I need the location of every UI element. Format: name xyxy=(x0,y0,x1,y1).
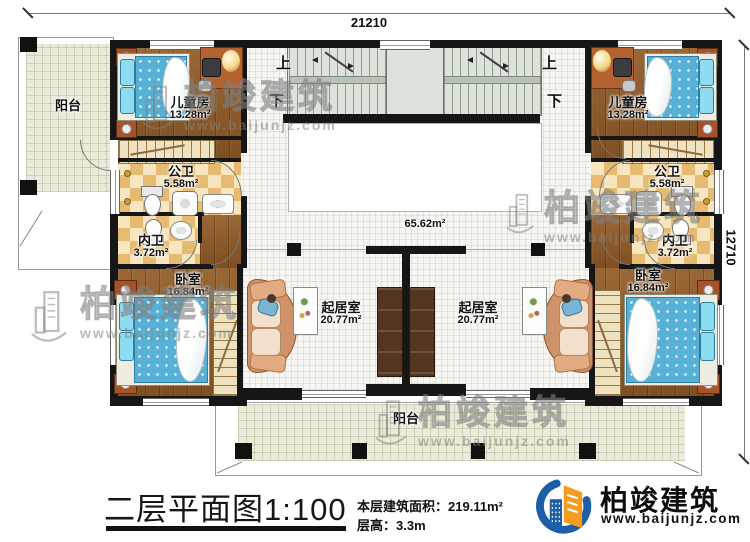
wall-bath-top-left xyxy=(117,158,241,162)
pillow xyxy=(700,332,715,361)
computer-monitor xyxy=(202,58,221,77)
wall-bedroom-living-left xyxy=(237,268,243,396)
wall-privbath-side-left xyxy=(198,215,202,243)
balcony-post-1 xyxy=(235,443,252,459)
computer-monitor xyxy=(613,58,632,77)
hall-area-label: 65.62m² xyxy=(392,219,458,231)
nightstand xyxy=(116,120,137,138)
floor-area-label: 本层建筑面积： xyxy=(357,499,448,514)
washing-machine xyxy=(172,191,198,216)
page-title: 二层平面图1:100 xyxy=(104,484,347,529)
balcony-left-post-top xyxy=(20,37,37,52)
pillow xyxy=(700,302,715,331)
wall-bottom-pier-left xyxy=(240,388,302,400)
balcony-left-door-gap xyxy=(110,140,118,170)
wall-bottom-pier-right xyxy=(530,388,592,400)
person-head xyxy=(267,294,276,303)
wall-privbath-side-right xyxy=(630,215,634,243)
pillow xyxy=(119,302,134,331)
dimension-line-right xyxy=(744,46,745,460)
washing-machine xyxy=(636,191,662,216)
balcony-post-3 xyxy=(471,443,485,459)
window-left-bath xyxy=(110,170,120,214)
dimension-width-value: 21210 xyxy=(338,15,400,30)
double-height-void xyxy=(288,123,542,212)
room-label-balcony-bottom: 阳台 xyxy=(374,412,438,426)
company-logo-url: www.baijunjz.com xyxy=(601,511,742,526)
balcony-left-post-bottom xyxy=(20,180,37,195)
tv-cabinet-right xyxy=(409,287,435,377)
room-label-child-right: 儿童房13.28m² xyxy=(588,96,668,122)
balcony-post-2 xyxy=(352,443,367,459)
desk-chair xyxy=(622,80,636,92)
floor-area-line: 本层建筑面积：219.11m² xyxy=(357,498,503,517)
sofa-cushion xyxy=(251,328,281,356)
sink xyxy=(600,194,632,214)
dimension-line-top xyxy=(27,13,731,14)
wall-hall-center xyxy=(366,246,466,254)
wall-corridor-left-lower xyxy=(241,196,247,268)
room-label-living-left: 起居室20.77m² xyxy=(305,301,377,327)
door-handle-dot xyxy=(703,198,710,205)
nightstand xyxy=(697,120,718,138)
side-table-right xyxy=(522,287,547,335)
room-label-child-left: 儿童房13.28m² xyxy=(150,96,230,122)
desk-lamp xyxy=(222,50,240,72)
room-label-bedroom-right: 卧室16.84m² xyxy=(610,269,686,295)
dimension-height-value: 12710 xyxy=(724,218,739,278)
person-head xyxy=(562,294,571,303)
hall-post-left xyxy=(287,243,301,256)
stair-arrow-right-a xyxy=(467,57,473,63)
room-label-balcony-left: 阳台 xyxy=(38,99,98,113)
sink xyxy=(202,194,234,214)
balcony-door-living-right xyxy=(466,390,530,398)
floor-height-label: 层高： xyxy=(357,518,396,533)
stair-down-label-left: 下 xyxy=(269,90,284,111)
wall-under-stairs xyxy=(283,114,540,123)
stair-arrow-left-b xyxy=(348,63,354,69)
pillow xyxy=(119,332,134,361)
window-bottom-bedroom-left xyxy=(143,398,209,406)
stair-arrow-right-b xyxy=(503,63,509,69)
wall-bottom-center xyxy=(366,384,466,396)
stair-rail-left xyxy=(289,76,386,84)
balcony-door-living-left xyxy=(302,390,366,398)
title-underline xyxy=(106,526,346,531)
room-label-bedroom-left: 卧室16.84m² xyxy=(150,273,226,299)
wall-bedroom-top-left xyxy=(117,264,213,269)
pillow xyxy=(120,59,135,86)
floor-area-value: 219.11m² xyxy=(448,499,503,514)
balcony-left-floor xyxy=(26,44,112,192)
door-handle-dot xyxy=(124,170,131,177)
window-right-bath xyxy=(714,170,724,214)
desk-lamp xyxy=(593,50,611,72)
wall-corridor-right-lower xyxy=(585,196,591,268)
sofa-cushion xyxy=(559,328,589,356)
balcony-post-4 xyxy=(579,443,596,459)
room-label-privbath-right: 内卫3.72m² xyxy=(637,234,713,260)
stair-arrow-left-a xyxy=(312,57,318,63)
stair-rail-right xyxy=(444,76,541,84)
floor-info: 本层建筑面积：219.11m² 层高：3.3m xyxy=(357,498,503,536)
watermark-building-icon xyxy=(24,286,74,348)
room-label-pubbath-right: 公卫5.58m² xyxy=(629,165,705,191)
tv-cabinet-left xyxy=(377,287,403,377)
room-label-privbath-left: 内卫3.72m² xyxy=(113,234,189,260)
floor-plan-page: 阳台 儿童房13.28m² 儿童房13.28m² 公卫5.58m² 公卫5.58… xyxy=(0,0,750,542)
wall-bath-top-right xyxy=(591,158,715,162)
pillow xyxy=(120,87,135,114)
company-logo-icon xyxy=(527,477,597,539)
room-label-living-right: 起居室20.77m² xyxy=(442,301,514,327)
door-handle-dot xyxy=(124,198,131,205)
pillow xyxy=(699,59,714,86)
pillow xyxy=(699,87,714,114)
desk-chair xyxy=(198,80,212,92)
floor-height-value: 3.3m xyxy=(396,518,426,533)
stair-up-label-left: 上 xyxy=(276,52,291,73)
room-label-pubbath-left: 公卫5.58m² xyxy=(143,165,219,191)
stair-up-label-right: 上 xyxy=(542,52,557,73)
balcony-bottom-floor xyxy=(238,404,685,461)
stair-down-label-right: 下 xyxy=(547,90,562,111)
hall-post-right xyxy=(531,243,545,256)
window-top-stairs xyxy=(380,40,430,50)
window-bottom-bedroom-right xyxy=(623,398,689,406)
floor-height-line: 层高：3.3m xyxy=(357,517,503,536)
